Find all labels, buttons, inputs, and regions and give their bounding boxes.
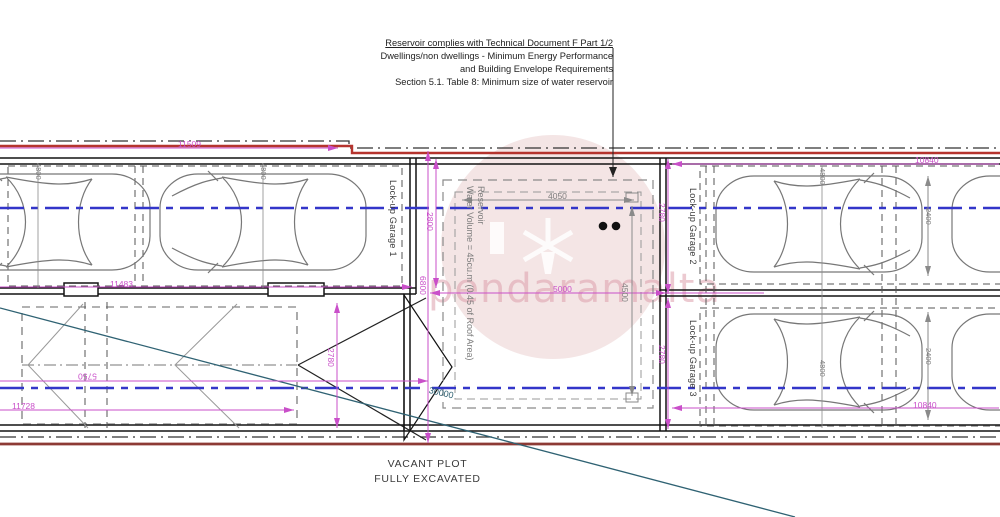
dim-5750: 5750 <box>78 372 97 381</box>
dim-11728: 11728 <box>12 402 35 411</box>
dim-2780-g2: 2780 <box>658 203 667 222</box>
dim-2400-g3: 2400 <box>925 348 933 365</box>
garage2-label: Lock-up Garage 2 <box>688 188 697 265</box>
reservoir-volume: Water Volume = 45cu.m (0.45 of Roof Area… <box>464 186 475 361</box>
reservoir-text: Reservoir Water Volume = 45cu.m (0.45 of… <box>464 186 487 361</box>
vacant-plot-line2: FULLY EXCAVATED <box>330 472 525 487</box>
dim-2780-g3: 2780 <box>658 345 667 364</box>
vacant-plot-caption: VACANT PLOT FULLY EXCAVATED <box>330 457 525 487</box>
site-boundary-bottom <box>0 437 1000 444</box>
dim-11509: 11509 <box>178 140 201 149</box>
dim-2780-plot: 2780 <box>327 348 336 367</box>
dim-4800-d: 4800 <box>819 360 827 377</box>
dim-4800-a: 4800 <box>35 163 43 180</box>
dim-4800-c: 4800 <box>819 168 827 185</box>
dim-10840-top: 10840 <box>915 156 939 165</box>
dim-2400-g2: 2400 <box>925 208 933 225</box>
dim-6800: 6800 <box>419 276 428 295</box>
garage3-label: Lock-up Garage 3 <box>688 320 697 397</box>
vacant-plot-block <box>22 295 452 440</box>
dim-2800: 2800 <box>426 212 435 231</box>
dim-4050: 4050 <box>548 192 567 201</box>
annotation-line1: Reservoir complies with Technical Docume… <box>345 37 613 50</box>
vacant-plot-line1: VACANT PLOT <box>330 457 525 472</box>
dim-11483: 11483 <box>110 280 133 289</box>
reservoir-annotation: Reservoir complies with Technical Docume… <box>345 37 613 89</box>
reservoir-title: Reservoir <box>475 186 486 361</box>
dim-4800-b: 4800 <box>260 163 268 180</box>
dim-10840-bottom: 10840 <box>913 401 937 410</box>
annotation-line4: Section 5.1. Table 8: Minimum size of wa… <box>345 76 613 89</box>
dim-5000: 5000 <box>553 285 572 294</box>
annotation-line2: Dwellings/non dwellings - Minimum Energy… <box>345 50 613 63</box>
dim-4500: 4500 <box>621 283 630 302</box>
garage1-label: Lock-up Garage 1 <box>388 180 397 257</box>
annotation-line3: and Building Envelope Requirements <box>345 63 613 76</box>
floor-plan-drawing: pendaramalta <box>0 0 1000 517</box>
